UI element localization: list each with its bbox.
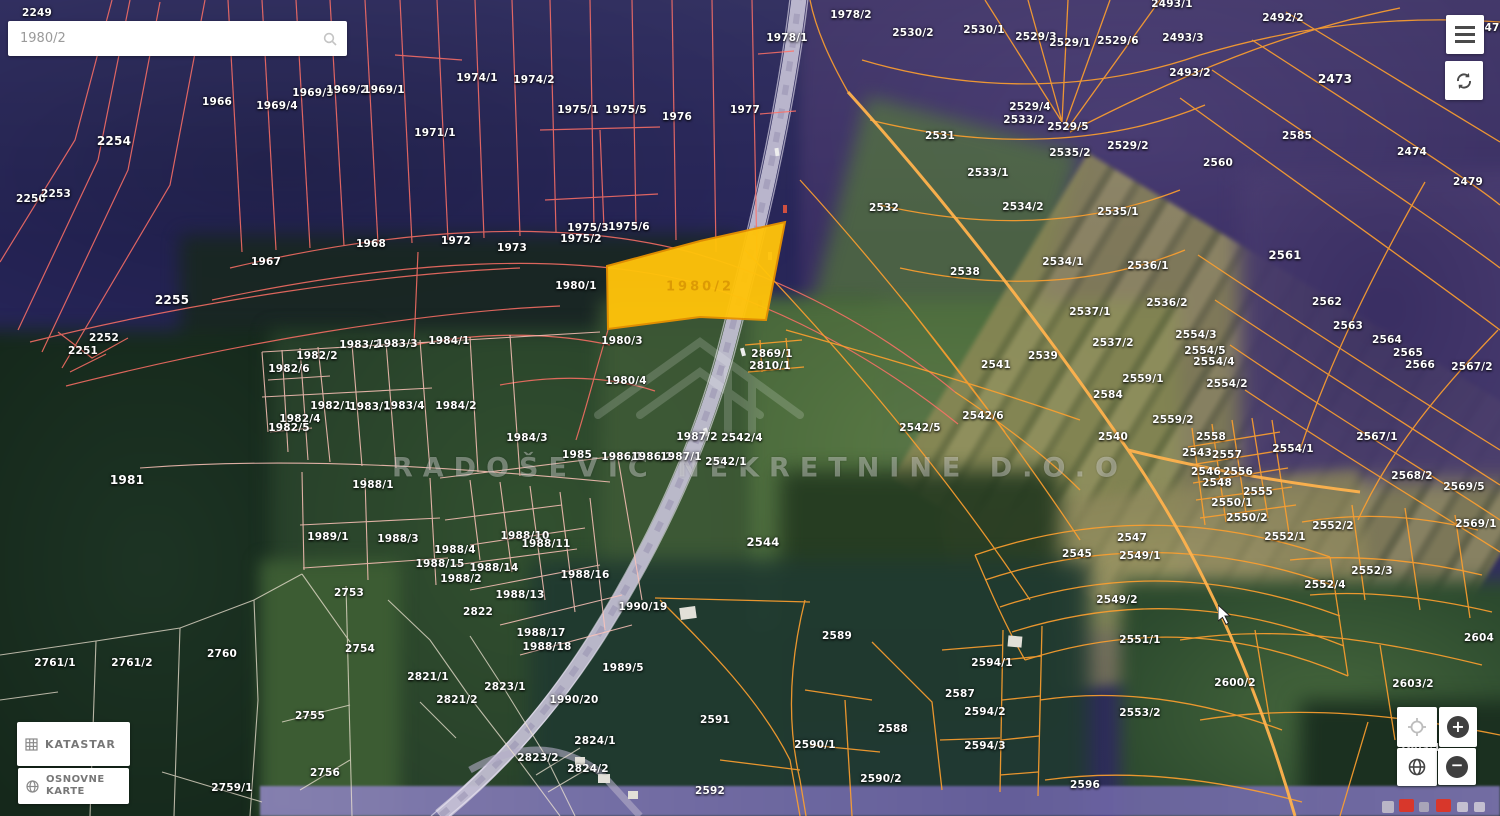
- parcel-label: 1974/2: [513, 74, 555, 86]
- parcel-label: 2587: [945, 688, 975, 700]
- parcel-label: 2492/2: [1262, 12, 1304, 24]
- parcel-label: 2540: [1098, 431, 1128, 443]
- parcel-label: 2567/1: [1356, 431, 1398, 443]
- parcel-label: 2534/2: [1002, 201, 1044, 213]
- parcel-label: 1982/4: [279, 413, 321, 425]
- parcel-label: 1984/3: [506, 432, 548, 444]
- parcel-label: 2554/2: [1206, 378, 1248, 390]
- parcel-label: 1973: [497, 242, 527, 254]
- parcel-label: 1980/3: [601, 335, 643, 347]
- terrain-patch: [941, 469, 1379, 702]
- parcel-label: 1988/16: [560, 569, 609, 581]
- parcel-label: 1968: [356, 238, 386, 250]
- parcel-label: 2591: [700, 714, 730, 726]
- building: [575, 606, 1022, 799]
- parcel-label: 2556: [1223, 466, 1253, 478]
- taskbar-icon-pdf[interactable]: [1436, 799, 1451, 812]
- katastar-button[interactable]: KATASTAR: [17, 722, 130, 766]
- parcel-label: 2250: [16, 193, 46, 205]
- parcel-label: 2539: [1028, 350, 1058, 362]
- globe-icon: [1407, 757, 1427, 777]
- parcel-label: 2493/2: [1169, 67, 1211, 79]
- parcel-label: 2538: [950, 266, 980, 278]
- watermark-text: RADOŠEVIĆ NEKRETNINE D.O.O: [392, 453, 1128, 484]
- parcel-label: 2823/2: [517, 752, 559, 764]
- parcel-label: 2529/5: [1047, 121, 1089, 133]
- parcel-label: 2810/1: [749, 360, 791, 372]
- parcel-label: 1988/3: [377, 533, 419, 545]
- parcel-label: 2534/1: [1042, 256, 1084, 268]
- parcel-label: 1988/14: [469, 562, 518, 574]
- parcel-label: 2761/2: [111, 657, 153, 669]
- parcel-label: 2530/1: [963, 24, 1005, 36]
- parcel-label: 2822: [463, 606, 493, 618]
- parcel-label: 2759/1: [211, 782, 253, 794]
- refresh-button[interactable]: [1445, 61, 1483, 100]
- parcel-label: 2552/4: [1304, 579, 1346, 591]
- terrain-patch: [800, 0, 1500, 370]
- parcel-label: 2568/2: [1391, 470, 1433, 482]
- mouse-cursor: [1218, 605, 1232, 630]
- parcel-label: 2547: [1117, 532, 1147, 544]
- map-canvas[interactable]: RADOŠEVIĆ NEKRETNINE D.O.O 224919661969/…: [0, 0, 1500, 816]
- parcel-label: 2548: [1202, 477, 1232, 489]
- parcel-label: 2824/1: [574, 735, 616, 747]
- parcel-label: 2823/1: [484, 681, 526, 693]
- highlighted-parcel-label: 1980/2: [666, 280, 734, 295]
- taskbar-icon[interactable]: [1474, 802, 1485, 812]
- parcel-label: 2590/1: [794, 739, 836, 751]
- terrain-patch: [600, 300, 880, 580]
- parcel-label: 1988/1: [352, 479, 394, 491]
- taskbar-icon[interactable]: [1382, 801, 1394, 813]
- parcel-label: 2253: [41, 188, 71, 200]
- locate-button[interactable]: [1397, 707, 1437, 747]
- parcel-label: 2554/4: [1193, 356, 1235, 368]
- parcel-label: 2473: [1318, 72, 1352, 86]
- parcel-label: 1982/1: [310, 400, 352, 412]
- parcel-label: 2554/1: [1272, 443, 1314, 455]
- parcel-label: 2552/2: [1312, 520, 1354, 532]
- parcel-label: 1980/1: [555, 280, 597, 292]
- photo-haze: [0, 0, 1500, 816]
- terrain-patch: [800, 96, 1080, 404]
- parcel-label: 2821/1: [407, 671, 449, 683]
- parcel-label: 1982/2: [296, 350, 338, 362]
- terrain-patch: [530, 560, 1090, 816]
- parcel-label: 2529/3: [1015, 31, 1057, 43]
- parcel-label: 2559/2: [1152, 414, 1194, 426]
- parcel-label: 2592: [695, 785, 725, 797]
- parcel-label: 2536/1: [1127, 260, 1169, 272]
- parcel-label: 2596: [1070, 779, 1100, 791]
- parcel-label: 2561: [1269, 248, 1302, 262]
- parcel-label: 2544: [747, 535, 780, 549]
- parcel-label: 1982/5: [268, 422, 310, 434]
- parcel-label: 2756: [310, 767, 340, 779]
- terrain-patch: [260, 560, 400, 816]
- parcel-label: 1983/1: [349, 401, 391, 413]
- parcel-label: 2252: [89, 332, 119, 344]
- parcel-label: 2535/2: [1049, 147, 1091, 159]
- parcel-label: 1977: [730, 104, 760, 116]
- parcel-label: 2530/2: [892, 27, 934, 39]
- parcel-label: 2254: [97, 134, 131, 148]
- parcel-label: 1966: [202, 96, 232, 108]
- parcel-label: 2535/1: [1097, 206, 1139, 218]
- parcel-label: 2554/3: [1175, 329, 1217, 341]
- parcel-label: 2594/3: [964, 740, 1006, 752]
- parcel-label: 1988/4: [434, 544, 476, 556]
- parcel-label: 1975/3: [567, 222, 609, 234]
- parcel-label: 1975/6: [608, 221, 650, 233]
- sync-icon: [1454, 71, 1474, 91]
- parcel-label: 2549/2: [1096, 594, 1138, 606]
- parcel-label: 2565: [1393, 347, 1423, 359]
- parcel-label: 1976: [662, 111, 692, 123]
- basemap-button[interactable]: [1397, 748, 1437, 786]
- parcel-label: 1978/1: [766, 32, 808, 44]
- parcel-label: 2600/2: [1214, 677, 1256, 689]
- hamburger-icon: [1455, 24, 1475, 45]
- parcel-label: 2545: [1062, 548, 1092, 560]
- search-input[interactable]: [18, 30, 323, 47]
- parcel-label: 1975/1: [557, 104, 599, 116]
- parcel-label: 2821/2: [436, 694, 478, 706]
- parcel-label: 2558: [1196, 431, 1226, 443]
- parcel-label: 1967: [251, 256, 281, 268]
- parcel-label: 1972: [441, 235, 471, 247]
- parcel-label: 2542/5: [899, 422, 941, 434]
- parcel-label: 1971/1: [414, 127, 456, 139]
- parcel-label: 1988/15: [415, 558, 464, 570]
- parcel-label: 2553/2: [1119, 707, 1161, 719]
- parcel-label: 2546: [1191, 466, 1221, 478]
- zoom-out-button[interactable]: −: [1438, 748, 1476, 785]
- parcel-label: 2529/6: [1097, 35, 1139, 47]
- parcel-label: 2603/2: [1392, 678, 1434, 690]
- katastar-label: KATASTAR: [45, 738, 116, 751]
- parcel-label: 1983/3: [376, 338, 418, 350]
- parcel-label: 2869/1: [751, 348, 793, 360]
- taskbar-icon-pdf[interactable]: [1399, 799, 1414, 812]
- parcel-label: 2251: [68, 345, 98, 357]
- parcel-label: 2537/1: [1069, 306, 1111, 318]
- parcel-label: 2584: [1093, 389, 1123, 401]
- taskbar-icon[interactable]: [1457, 802, 1468, 812]
- parcel-label: 2529/2: [1107, 140, 1149, 152]
- parcel-label: 2493/3: [1162, 32, 1204, 44]
- zoom-in-button[interactable]: +: [1439, 707, 1477, 747]
- parcel-label: 2479: [1453, 176, 1483, 188]
- parcel-label: 2533/2: [1003, 114, 1045, 126]
- parcel-label: 1990/19: [618, 601, 667, 613]
- parcel-label: 1984/2: [435, 400, 477, 412]
- parcel-label: 2542/6: [962, 410, 1004, 422]
- parcel-label: 2594/1: [971, 657, 1013, 669]
- parcel-label: 2566: [1405, 359, 1435, 371]
- parcel-label: 1969/1: [363, 84, 405, 96]
- highlighted-parcel: [607, 222, 785, 329]
- parcel-label: 1990/20: [549, 694, 598, 706]
- parcel-label: 2585: [1282, 130, 1312, 142]
- parcel-label: 2559/1: [1122, 373, 1164, 385]
- parcel-label: 1988/2: [440, 573, 482, 585]
- parcel-label: 2755: [295, 710, 325, 722]
- parcel-label: 2554/5: [1184, 345, 1226, 357]
- parcel-label: 1988/11: [521, 538, 570, 550]
- parcel-label: 2552/3: [1351, 565, 1393, 577]
- parcel-label: 1982/6: [268, 363, 310, 375]
- menu-button[interactable]: [1446, 15, 1484, 54]
- parcel-label: 1988/13: [495, 589, 544, 601]
- parcel-label: 2560: [1203, 157, 1233, 169]
- parcel-label: 1978/2: [830, 9, 872, 21]
- parcel-label: 2567/2: [1451, 361, 1493, 373]
- parcel-label: 1987/2: [676, 431, 718, 443]
- bottom-road-blur: [260, 786, 1500, 816]
- parcel-label: 2594/2: [964, 706, 1006, 718]
- parcel-label: 1989/1: [307, 531, 349, 543]
- parcel-label: 2604: [1464, 632, 1494, 644]
- parcel-label: 2537/2: [1092, 337, 1134, 349]
- parcel-label: 1988/18: [522, 641, 571, 653]
- parcel-label: 1975/5: [605, 104, 647, 116]
- parcel-label: 2557: [1212, 449, 1242, 461]
- parcel-label: 2529/1: [1049, 37, 1091, 49]
- parcel-label: 2542/4: [721, 432, 763, 444]
- parcel-label: 2532: [869, 202, 899, 214]
- parcel-label: 2589: [822, 630, 852, 642]
- terrain-patch: [270, 330, 790, 816]
- parcel-label: 2588: [878, 723, 908, 735]
- taskbar-icon[interactable]: [1419, 802, 1429, 812]
- parcel-label: 1974/1: [456, 72, 498, 84]
- minus-icon: −: [1446, 756, 1468, 778]
- parcel-lines-layer: [0, 0, 1500, 816]
- parcel-label: 2563: [1333, 320, 1363, 332]
- parcel-label: 2552/1: [1264, 531, 1306, 543]
- watermark-logo-house: [598, 342, 800, 432]
- terrain-patch: [180, 235, 740, 365]
- parcel-label: 1975/2: [560, 233, 602, 245]
- parcel-label: 2493/1: [1151, 0, 1193, 10]
- parcel-label: 2555: [1243, 486, 1273, 498]
- crosshair-icon: [1407, 717, 1427, 737]
- parcel-label: 1988/10: [500, 530, 549, 542]
- parcel-label: 2255: [155, 293, 189, 307]
- terrain-patch: [0, 0, 840, 400]
- globe-icon: [26, 780, 39, 793]
- osnovne-karte-label: OSNOVNE KARTE: [46, 774, 104, 798]
- osnovne-karte-button[interactable]: OSNOVNE KARTE: [18, 768, 129, 804]
- plus-icon: +: [1447, 716, 1469, 738]
- search-bar: [8, 21, 347, 56]
- parcel-label: 2549/1: [1119, 550, 1161, 562]
- parcel-label: 2562: [1312, 296, 1342, 308]
- parcel-label: 2569/1: [1455, 518, 1497, 530]
- parcel-label: 1969/4: [256, 100, 298, 112]
- magnifier-icon[interactable]: [323, 32, 337, 46]
- parcel-label: 2754: [345, 643, 375, 655]
- parcel-label: 1980/4: [605, 375, 647, 387]
- parcel-label: 2529/4: [1009, 101, 1051, 113]
- parcel-label: 1983/2: [339, 339, 381, 351]
- highway: [431, 0, 809, 816]
- parcel-label: 2249: [22, 7, 52, 19]
- parcel-label: 1969/3: [292, 87, 334, 99]
- parcel-label: 1969/2: [326, 84, 368, 96]
- parcel-label: 2474: [1397, 146, 1427, 158]
- parcel-label: 2569/5: [1443, 481, 1485, 493]
- parcel-label: 1981: [110, 473, 144, 487]
- terrain-patch: [1240, 170, 1500, 480]
- parcel-label: 2761/1: [34, 657, 76, 669]
- parcel-label: 2541: [981, 359, 1011, 371]
- parcel-label: 2760: [207, 648, 237, 660]
- parcel-label: 1988/17: [516, 627, 565, 639]
- parcel-label: 2590/2: [860, 773, 902, 785]
- parcel-label: 2531: [925, 130, 955, 142]
- parcel-label: 2533/1: [967, 167, 1009, 179]
- grid-icon: [25, 738, 38, 751]
- parcel-labels: 224919661969/41969/31969/21969/11971/119…: [0, 0, 1500, 816]
- parcel-label: 2543: [1182, 447, 1212, 459]
- parcel-label: 2564: [1372, 334, 1402, 346]
- parcel-label: 1989/5: [602, 662, 644, 674]
- parcel-label: 2550/2: [1226, 512, 1268, 524]
- parcel-label: 2550/1: [1211, 497, 1253, 509]
- parcel-label: 2536/2: [1146, 297, 1188, 309]
- parcel-label: 2753: [334, 587, 364, 599]
- parcel-label: 1983/4: [383, 400, 425, 412]
- parcel-label: 2824/2: [567, 763, 609, 775]
- parcel-label: 2551/1: [1119, 634, 1161, 646]
- parcel-label: 1984/1: [428, 335, 470, 347]
- terrain-patch: [780, 470, 1060, 730]
